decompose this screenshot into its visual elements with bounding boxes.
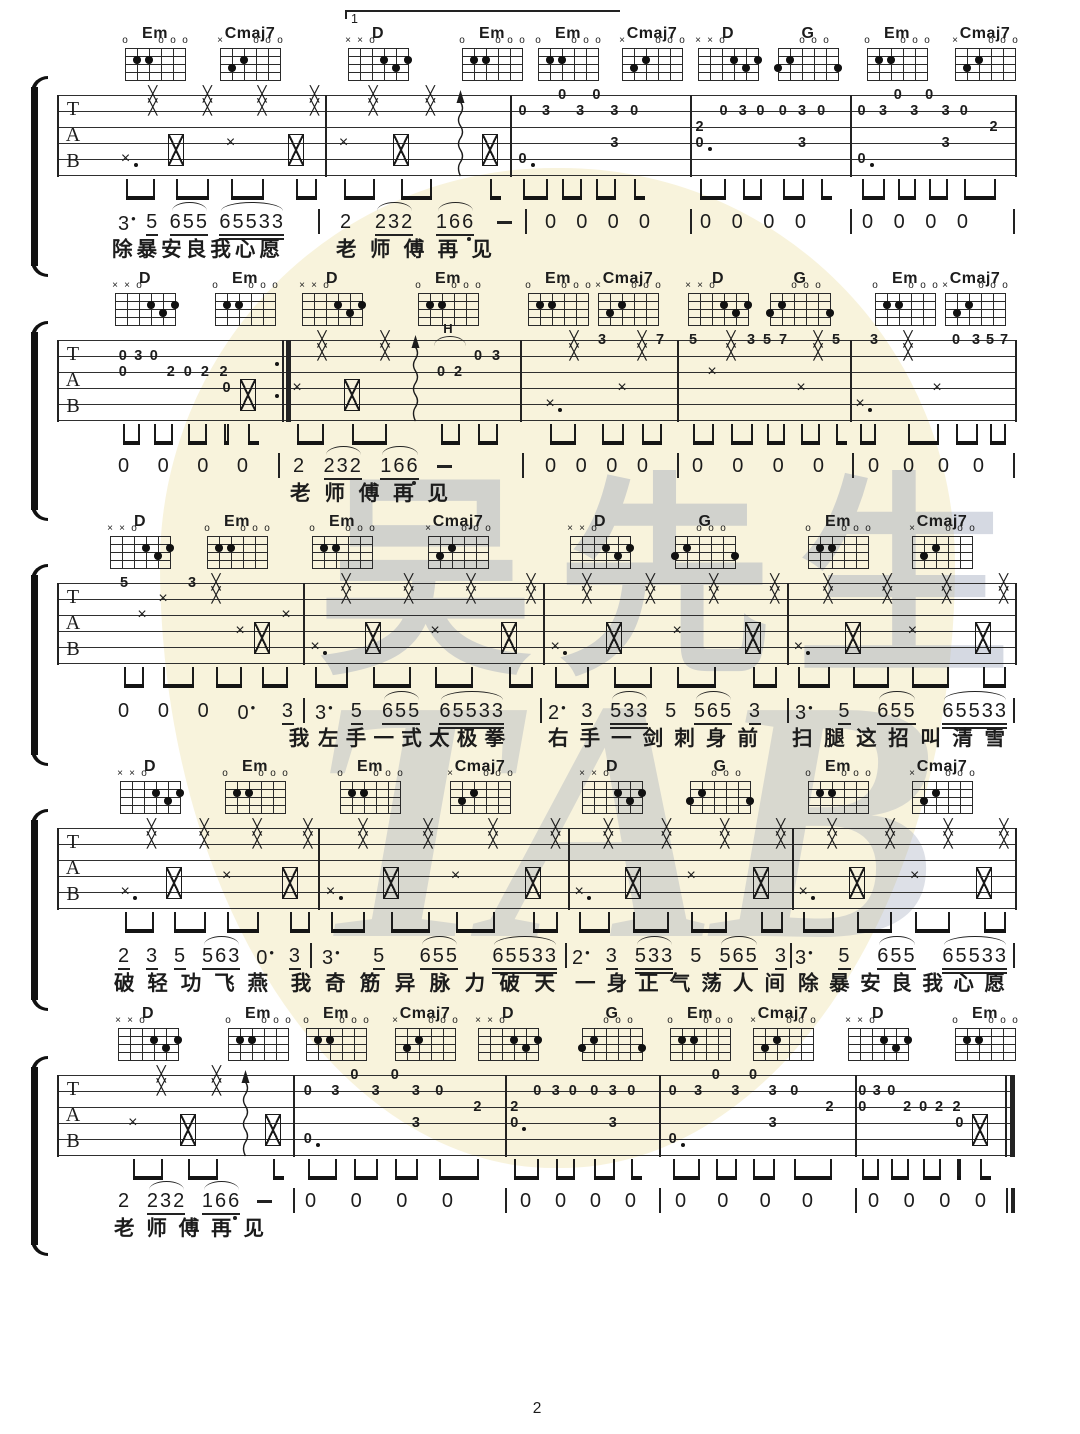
tab-staff-line (57, 647, 1015, 648)
beam-line (352, 441, 387, 445)
lyric-char: 手 (580, 728, 601, 751)
jianpu-token: 655 (420, 946, 459, 966)
jianpu-token: 0 (760, 1191, 773, 1211)
tab-clef-letter: T (67, 344, 79, 364)
jianpu-token: 166 (436, 212, 475, 232)
jianpu-token: 565 (719, 946, 758, 966)
beam-line (853, 684, 889, 688)
chord-diagram-grid (848, 1028, 909, 1061)
chord-finger-dot (883, 301, 891, 309)
tab-fret-number: 7 (779, 333, 787, 348)
beam-line (154, 441, 173, 445)
jianpu-token: 0 (903, 456, 916, 476)
tab-slap-box (383, 867, 399, 899)
beam-line (860, 441, 876, 445)
beam-line (633, 929, 669, 933)
tab-fret-number: 0 (510, 1116, 518, 1131)
lyric-char: 愿 (259, 239, 280, 262)
tab-slap-box (845, 622, 861, 654)
beam-hook (634, 196, 645, 200)
jianpu-measure: 0000 (862, 212, 970, 232)
tab-fret-number: 0 (590, 1084, 598, 1099)
chord-string-marker-open: o (932, 281, 938, 291)
chord-string-marker-open: o (791, 281, 797, 291)
tab-strum-x-stack: ╳╳ (369, 88, 378, 114)
chord-string-marker-mute: × (487, 1016, 493, 1026)
jianpu-barline (690, 209, 692, 234)
chord-string-marker-open: o (452, 1016, 458, 1026)
chord-string-marker-mute: × (750, 1016, 756, 1026)
chord-finger-dot (626, 797, 634, 805)
tab-strum-x-stack: ╳╳ (646, 576, 655, 602)
jianpu-token: 0 (637, 456, 650, 476)
tab-slap-box (365, 622, 381, 654)
chord-finger-dot (953, 309, 961, 317)
tab-slap-box (976, 867, 992, 899)
chord-diagram-grid (207, 536, 268, 569)
tab-staff-line (57, 143, 1015, 144)
jianpu-token: 0 (305, 1191, 318, 1211)
chord-string-marker-open: o (285, 1016, 291, 1026)
tab-strum-x-stack: ╳╳ (303, 821, 312, 847)
tab-mute-x: × (794, 639, 803, 655)
jianpu-token: 0 (639, 212, 652, 232)
jianpu-token: 0 (975, 1191, 988, 1211)
tab-clef-letter: A (66, 858, 80, 878)
lyric-line: 除暴安良我心愿 (798, 973, 1005, 996)
chord-finger-dot (578, 1044, 586, 1052)
jianpu-token: 5 (373, 946, 386, 966)
chord-string-marker-open: o (265, 36, 271, 46)
tab-fret-number: 0 (630, 104, 638, 119)
beam-line (693, 441, 714, 445)
measure-barline (1015, 340, 1017, 422)
tab-fret-number: 3 (331, 1084, 339, 1099)
tab-clef-letter: B (66, 151, 79, 171)
chord-string-marker-open: o (715, 1016, 721, 1026)
beam-line (990, 441, 1006, 445)
lyric-line: 扫腿这招叫清雪 (792, 728, 1005, 751)
chord-finger-dot (720, 301, 728, 309)
tab-fret-number: 0 (519, 152, 527, 167)
tab-fret-number: 2 (167, 365, 175, 380)
chord-string-marker-open: o (655, 36, 661, 46)
chord-finger-dot (963, 1036, 971, 1044)
lyric-char: 暴 (137, 239, 158, 262)
chord-string-marker-open: o (507, 769, 513, 779)
volta-bracket-tick (345, 10, 347, 19)
tab-fret-number: 0 (533, 1084, 541, 1099)
beam-hook (821, 196, 832, 200)
tab-clef-letter: B (66, 396, 79, 416)
jianpu-token: 65533 (942, 946, 1008, 966)
beam-hook (631, 1176, 642, 1180)
tab-fret-number: 3 (412, 1116, 420, 1131)
chord-string-marker-open: o (270, 769, 276, 779)
chord-string-marker-open: o (571, 36, 577, 46)
tab-fret-number: 0 (952, 333, 960, 348)
beam-line (523, 196, 548, 200)
chord-string-marker-open: o (810, 1016, 816, 1026)
jianpu-token: 0 (625, 1191, 638, 1211)
chord-string-marker-open: o (603, 1016, 609, 1026)
tab-fret-number: 3 (972, 333, 980, 348)
tab-fret-number: 5 (689, 333, 697, 348)
tab-strum-x-stack: ╳╳ (466, 576, 475, 602)
tab-strum-x-stack: ╳╳ (604, 821, 613, 847)
chord-string-marker-open: o (495, 36, 501, 46)
tab-strum-x-stack: ╳╳ (157, 1068, 166, 1094)
tab-fret-number: 0 (184, 365, 192, 380)
augmentation-dot (587, 896, 591, 900)
chord-finger-dot (240, 56, 248, 64)
chord-string-marker-open: o (988, 36, 994, 46)
chord-string-marker-mute: × (112, 281, 118, 291)
jianpu-measure: 2355630•3 (118, 946, 302, 968)
beam-line (753, 684, 777, 688)
chord-finger-dot (360, 789, 368, 797)
jianpu-token: 0 (555, 1191, 568, 1211)
lyric-char: 傅 (359, 483, 380, 506)
beam-line (456, 929, 495, 933)
beam-line (391, 929, 430, 933)
chord-string-marker-open: o (212, 281, 218, 291)
lyric-char: 腿 (824, 728, 845, 751)
tab-strum-x-stack: ╳╳ (942, 576, 951, 602)
chord-string-marker-mute: × (345, 36, 351, 46)
chord-string-marker-mute: × (447, 769, 453, 779)
chord-string-marker-open: o (853, 524, 859, 534)
chord-finger-dot (590, 1036, 598, 1044)
chord-string-marker-open: o (945, 769, 951, 779)
tab-slap-box (344, 379, 360, 411)
tab-fret-number: 2 (952, 1100, 960, 1115)
chord-string-marker-mute: × (311, 281, 317, 291)
lyric-char: 功 (181, 973, 202, 996)
lyric-char: 破 (114, 973, 135, 996)
tab-strum-x-stack: ╳╳ (380, 333, 389, 359)
augmentation-dot (134, 163, 138, 167)
tab-fret-number: 2 (219, 365, 227, 380)
chord-string-marker-open: o (240, 524, 246, 534)
repeat-dot (275, 394, 279, 398)
jianpu-token: 5 (665, 701, 678, 721)
beam-line (262, 684, 288, 688)
beam-line (441, 441, 460, 445)
chord-string-marker-open: o (952, 1016, 958, 1026)
chord-string-marker-open: o (507, 36, 513, 46)
chord-diagram-grid (120, 781, 181, 814)
beam-line (753, 1176, 775, 1180)
chord-string-marker-open: o (864, 36, 870, 46)
chord-finger-dot (348, 789, 356, 797)
chord-string-marker-open: o (277, 36, 283, 46)
jianpu-token: 0 (396, 1191, 409, 1211)
chord-diagram-grid (582, 781, 643, 814)
jianpu-token: 232 (324, 456, 363, 476)
chord-finger-dot (638, 1044, 646, 1052)
measure-barline (855, 1075, 857, 1157)
beam-line (354, 1176, 378, 1180)
jianpu-barline (790, 943, 792, 968)
jianpu-token: 655 (877, 701, 916, 721)
beam-hook (490, 196, 501, 200)
chord-finger-dot (159, 309, 167, 317)
tab-fret-number: 0 (627, 1084, 635, 1099)
tab-strum-x-stack: ╳╳ (358, 821, 367, 847)
chord-string-marker-mute: × (619, 36, 625, 46)
chord-string-marker-mute: × (685, 281, 691, 291)
measure-barline (568, 828, 570, 910)
jianpu-measure: 0000 (675, 1191, 815, 1211)
chord-string-marker-open: o (723, 769, 729, 779)
tab-mute-x: × (120, 884, 129, 900)
chord-string-marker-open: o (459, 36, 465, 46)
chord-string-marker-open: o (1002, 281, 1008, 291)
chord-finger-dot (766, 309, 774, 317)
beam-line (124, 684, 144, 688)
chord-string-marker-open: o (696, 524, 702, 534)
repeat-barline-thick (286, 340, 291, 422)
lyric-line: 一身正气荡人间 (575, 973, 785, 996)
tab-fret-number: 0 (391, 1068, 399, 1083)
tab-staff-line (57, 95, 1015, 96)
tab-fret-number: 0 (858, 1084, 866, 1099)
chord-string-marker-mute: × (129, 769, 135, 779)
beam-line (174, 929, 206, 933)
chord-diagram-grid (225, 781, 286, 814)
chord-string-marker-open: o (222, 769, 228, 779)
chord-diagram-grid (770, 293, 831, 326)
lyric-char: 荡 (701, 973, 722, 996)
jianpu-measure: 3•565565533 (795, 946, 1008, 968)
chord-string-marker-mute: × (909, 524, 915, 534)
measure-barline (1015, 828, 1017, 910)
jianpu-token: 166 (380, 456, 419, 476)
tab-fret-number: 7 (1000, 333, 1008, 348)
tab-strum-x-stack: ╳╳ (886, 821, 895, 847)
tab-fret-number: 3 (879, 104, 887, 119)
chord-finger-dot (816, 544, 824, 552)
chord-finger-dot (404, 56, 412, 64)
measure-barline (659, 1075, 661, 1157)
chord-finger-dot (744, 301, 752, 309)
beam-line (700, 196, 726, 200)
tab-fret-number: 0 (519, 104, 527, 119)
lyric-char: 良 (891, 973, 912, 996)
beam-line (915, 929, 950, 933)
jianpu-token: 0 (868, 456, 881, 476)
tab-mute-x: × (281, 607, 290, 623)
tab-staff-line (57, 860, 1015, 861)
beam-line (964, 196, 996, 200)
jianpu-token: 0 (198, 701, 211, 721)
chord-finger-dot (233, 789, 241, 797)
chord-finger-dot (834, 64, 842, 72)
beam-line (435, 684, 473, 688)
jianpu-measure: 0000 (692, 456, 826, 476)
chord-string-marker-open: o (703, 1016, 709, 1026)
chord-diagram-grid (115, 293, 176, 326)
beam-line (691, 929, 727, 933)
tab-fret-number: 3 (610, 104, 618, 119)
jianpu-token (437, 456, 452, 468)
chord-finger-dot (895, 301, 903, 309)
tab-mute-x: × (545, 396, 554, 412)
jianpu-token: 0• (256, 946, 274, 968)
tab-fret-number: 0 (669, 1084, 677, 1099)
jianpu-measure: 3•565565533 (315, 701, 505, 723)
tab-strum-arrow (455, 90, 466, 183)
beam-line (794, 1176, 832, 1180)
tab-mute-x: × (128, 1115, 137, 1131)
chord-string-marker-open: o (708, 524, 714, 534)
augmentation-dot (811, 896, 815, 900)
beam-line (803, 929, 834, 933)
chord-string-marker-open: o (473, 524, 479, 534)
beam-line (862, 196, 885, 200)
chord-string-marker-open: o (735, 769, 741, 779)
chord-string-marker-mute: × (909, 769, 915, 779)
beam-line (761, 929, 783, 933)
tab-mute-x: × (222, 868, 231, 884)
lyric-char: 我 (922, 973, 943, 996)
beam-line (188, 1176, 218, 1180)
chord-string-marker-open: o (841, 524, 847, 534)
lyric-char: 见 (244, 1218, 265, 1241)
beam-line (315, 684, 348, 688)
chord-finger-dot (171, 301, 179, 309)
tab-strum-x-stack: ╳╳ (726, 333, 735, 359)
tab-fret-number: 0 (712, 1068, 720, 1083)
tab-strum-x-stack: ╳╳ (944, 821, 953, 847)
beam-line (673, 1176, 700, 1180)
jianpu-measure: 3•565565533 (118, 212, 285, 234)
lyric-char: 安 (161, 239, 182, 262)
chord-string-marker-open: o (397, 769, 403, 779)
chord-string-marker-mute: × (127, 1016, 133, 1026)
tab-fret-number: 3 (769, 1084, 777, 1099)
chord-string-marker-mute: × (475, 1016, 481, 1026)
beam-line (439, 1176, 479, 1180)
chord-string-marker-open: o (1012, 36, 1018, 46)
tab-fret-number: 0 (790, 1084, 798, 1099)
chord-finger-dot (686, 797, 694, 805)
tab-staff-line (57, 404, 1015, 405)
jianpu-measure: 0000 (700, 212, 808, 232)
chord-string-marker-open: o (872, 281, 878, 291)
lyric-char: 我 (291, 973, 312, 996)
tab-staff-line (57, 159, 1015, 160)
chord-diagram-grid (778, 48, 839, 81)
chord-string-marker-open: o (1012, 1016, 1018, 1026)
beam-line (983, 684, 1006, 688)
jianpu-token: 3• (795, 701, 813, 723)
jianpu-token: 0 (862, 212, 875, 232)
chord-string-marker-open: o (603, 769, 609, 779)
chord-string-marker-mute: × (942, 281, 948, 291)
tab-strum-x-stack: ╳╳ (551, 821, 560, 847)
chord-finger-dot (314, 1036, 322, 1044)
chord-finger-dot (975, 1036, 983, 1044)
tab-fret-number: 0 (919, 1100, 927, 1115)
notation-layer: 1TABEmooooCmaj7×oooD××oEmooooEmooooCmaj7… (0, 0, 1080, 1434)
jianpu-measure: 2•353355653 (548, 701, 762, 723)
lyric-char: 异 (395, 973, 416, 996)
jianpu-token: 0 (158, 701, 171, 721)
tab-fret-number: 0 (696, 136, 704, 151)
chord-finger-dot (436, 552, 444, 560)
chord-finger-dot (932, 544, 940, 552)
chord-finger-dot (558, 56, 566, 64)
tab-strum-x-stack: ╳╳ (776, 821, 785, 847)
measure-barline (57, 583, 59, 665)
tab-staff-line (57, 1107, 1015, 1108)
jianpu-barline (540, 698, 542, 723)
tab-fret-number: 3 (492, 349, 500, 364)
jianpu-token: 3 (282, 701, 295, 721)
chord-finger-dot (742, 64, 750, 72)
jianpu-measure: 2232166 (118, 1191, 272, 1211)
chord-string-marker-open: o (136, 281, 142, 291)
chord-finger-dot (746, 797, 754, 805)
tab-mute-x: × (796, 380, 805, 396)
beam-hook (836, 441, 847, 445)
jianpu-token: 0 (692, 456, 705, 476)
tab-mute-x: × (798, 884, 807, 900)
tab-fret-number: 3 (188, 576, 196, 591)
lyric-char: 破 (500, 973, 521, 996)
lyric-char: 飞 (214, 973, 235, 996)
chord-finger-dot (332, 544, 340, 552)
jianpu-token: 0 (675, 1191, 688, 1211)
system-brace (31, 1067, 38, 1245)
chord-finger-dot (618, 301, 626, 309)
chord-string-marker-open: o (357, 524, 363, 534)
tab-strum-x-stack: ╳╳ (404, 576, 413, 602)
augmentation-dot (708, 147, 712, 151)
tab-strum-x-stack: ╳╳ (999, 576, 1008, 602)
jianpu-dash (257, 1200, 272, 1203)
chord-finger-dot (965, 301, 973, 309)
chord-string-marker-open: o (303, 1016, 309, 1026)
tab-staff-line (57, 583, 1015, 584)
tab-mute-x: × (451, 868, 460, 884)
beam-line (514, 1176, 539, 1180)
lyric-char: 心 (235, 239, 256, 262)
chord-string-marker-open: o (323, 281, 329, 291)
chord-string-marker-open: o (805, 524, 811, 534)
tab-fret-number: 3 (542, 104, 550, 119)
chord-string-marker-open: o (957, 524, 963, 534)
tab-fret-number: 5 (832, 333, 840, 348)
tab-strum-x-stack: ╳╳ (317, 333, 326, 359)
tab-fret-number: 0 (437, 365, 445, 380)
tab-mute-x: × (226, 135, 235, 151)
tab-strum-x-stack: ╳╳ (999, 821, 1008, 847)
chord-diagram-grid (462, 48, 523, 81)
tab-strum-x-stack: ╳╳ (310, 88, 319, 114)
jianpu-barline (505, 1188, 507, 1213)
chord-finger-dot (761, 1044, 769, 1052)
jianpu-token: 0 (894, 212, 907, 232)
tab-strum-x-stack: ╳╳ (526, 576, 535, 602)
tab-slap-box (180, 1114, 196, 1146)
chord-string-marker-mute: × (107, 524, 113, 534)
beam-line (731, 441, 753, 445)
chord-diagram-grid (867, 48, 928, 81)
tab-staff-line (57, 420, 1015, 421)
